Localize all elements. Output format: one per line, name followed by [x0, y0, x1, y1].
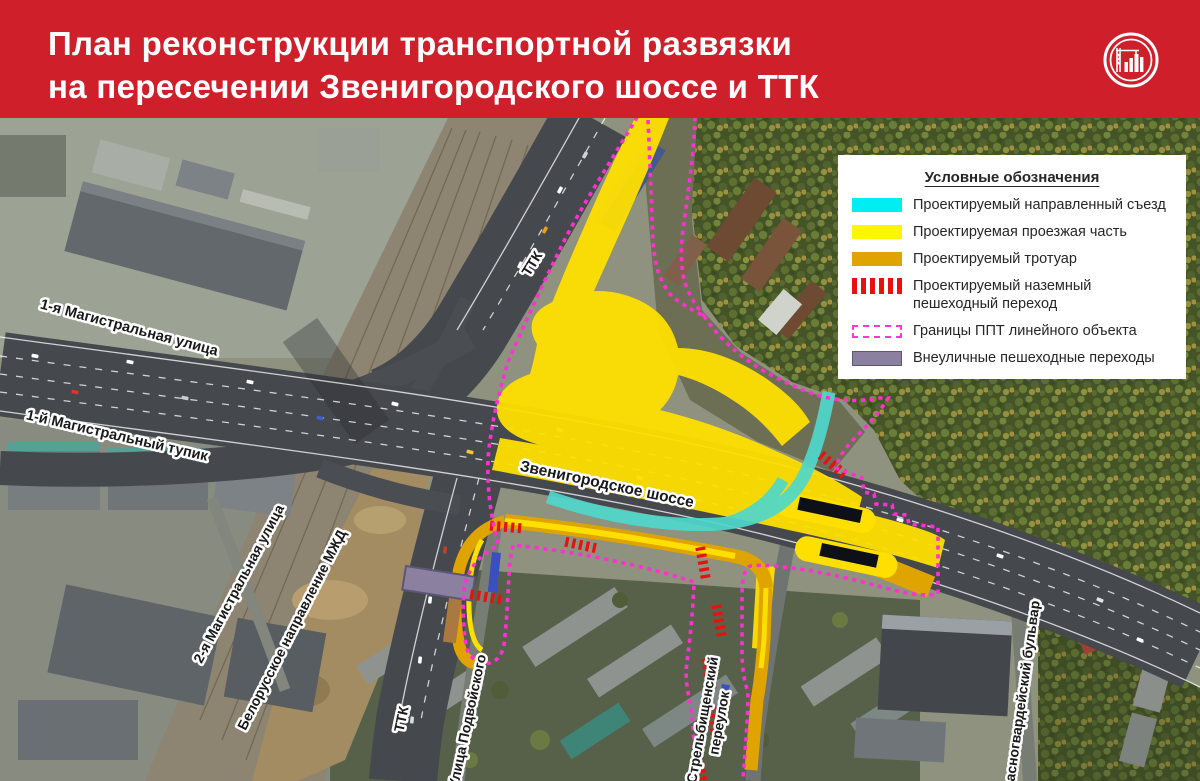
page-title: План реконструкции транспортной развязки… [48, 22, 819, 108]
construction-crane-logo-icon [1102, 31, 1160, 89]
header-band: План реконструкции транспортной развязки… [0, 0, 1200, 118]
legend-item-underpass: Внеуличные пешеходные переходы [852, 349, 1172, 367]
magenta-dashed-swatch-icon [852, 325, 902, 338]
legend-item-crosswalk: Проектируемый наземный пешеходный перехо… [852, 277, 1172, 313]
orange-swatch-icon [852, 252, 902, 266]
legend-item-roadway: Проектируемая проезжая часть [852, 223, 1172, 241]
page-title-line1: План реконструкции транспортной развязки [48, 22, 819, 65]
purple-swatch-icon [852, 351, 902, 366]
legend-title: Условные обозначения [852, 169, 1172, 186]
yellow-swatch-icon [852, 225, 902, 239]
red-hatch-swatch-icon [852, 278, 902, 294]
page-title-line2: на пересечении Звенигородского шоссе и Т… [48, 65, 819, 108]
reconstruction-plan-poster: План реконструкции транспортной развязки… [0, 0, 1200, 781]
legend-item-boundary: Границы ППТ линейного объекта [852, 322, 1172, 340]
legend-item-sidewalk: Проектируемый тротуар [852, 250, 1172, 268]
cyan-swatch-icon [852, 198, 902, 212]
legend: Условные обозначения Проектируемый напра… [838, 155, 1186, 379]
legend-item-ramp: Проектируемый направленный съезд [852, 196, 1172, 214]
